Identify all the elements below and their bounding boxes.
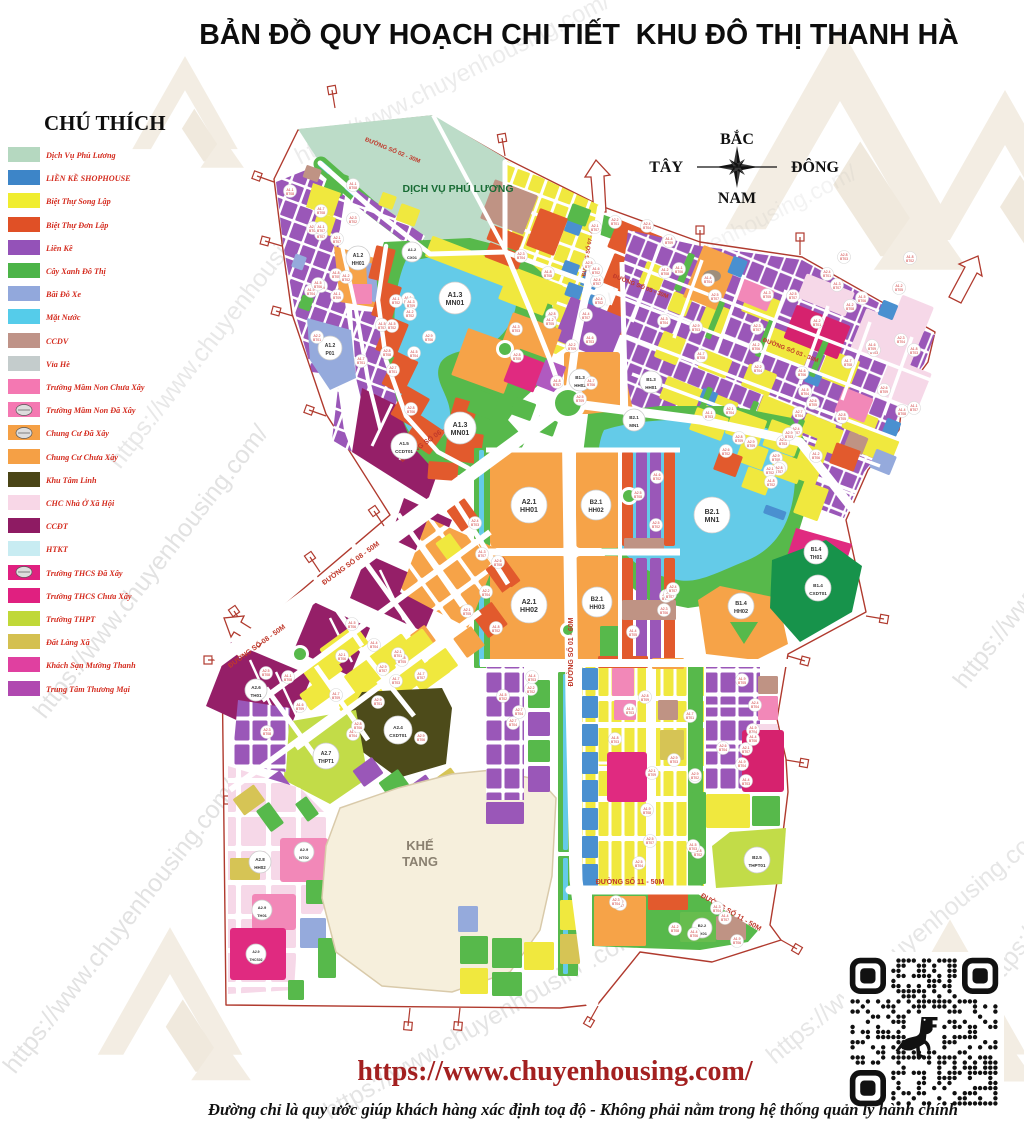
svg-text:BT06: BT06	[660, 611, 668, 615]
svg-text:Biệt Thự Song Lập: Biệt Thự Song Lập	[45, 197, 111, 206]
svg-text:BT08: BT08	[844, 363, 852, 367]
svg-text:BT05: BT05	[809, 403, 817, 407]
svg-text:A1.3: A1.3	[453, 422, 468, 429]
svg-text:BT04: BT04	[751, 705, 759, 709]
svg-text:MN1: MN1	[629, 423, 639, 428]
svg-text:Vỉa Hè: Vỉa Hè	[46, 360, 70, 369]
svg-text:BT06: BT06	[733, 941, 741, 945]
svg-text:BT09: BT09	[333, 296, 341, 300]
svg-text:BT02: BT02	[906, 259, 914, 263]
svg-text:BT03: BT03	[779, 442, 787, 446]
svg-text:HH02: HH02	[520, 607, 538, 614]
svg-text:Mặt Nước: Mặt Nước	[45, 313, 81, 322]
svg-text:A2.1: A2.1	[522, 499, 537, 506]
svg-text:A2.6: A2.6	[251, 685, 261, 690]
svg-text:BT06: BT06	[812, 456, 820, 460]
svg-text:BT06: BT06	[749, 739, 757, 743]
svg-text:MN1: MN1	[705, 517, 720, 524]
svg-text:BT06: BT06	[314, 285, 322, 289]
svg-text:BT08: BT08	[661, 272, 669, 276]
svg-text:BT06: BT06	[798, 373, 806, 377]
svg-text:BT05: BT05	[838, 417, 846, 421]
svg-text:HH01: HH01	[520, 507, 538, 514]
svg-text:TH01: TH01	[250, 693, 262, 698]
svg-text:BT02: BT02	[595, 301, 603, 305]
svg-text:BT09: BT09	[576, 399, 584, 403]
svg-text:TH01: TH01	[810, 555, 822, 561]
svg-text:BT09: BT09	[868, 347, 876, 351]
svg-text:BT07: BT07	[833, 286, 841, 290]
svg-text:BT03: BT03	[512, 329, 520, 333]
svg-text:BT05: BT05	[513, 357, 521, 361]
svg-text:BT02: BT02	[492, 629, 500, 633]
svg-text:Trường Mầm Non Đã Xây: Trường Mầm Non Đã Xây	[46, 406, 136, 415]
svg-text:BT04: BT04	[307, 292, 315, 296]
svg-text:BT03: BT03	[785, 435, 793, 439]
svg-text:BT05: BT05	[463, 612, 471, 616]
svg-text:BT02: BT02	[499, 697, 507, 701]
svg-text:BT02: BT02	[592, 271, 600, 275]
svg-text:A1.2: A1.2	[325, 343, 336, 349]
svg-text:BT09: BT09	[296, 707, 304, 711]
svg-text:BT03: BT03	[471, 523, 479, 527]
svg-text:BT09: BT09	[641, 698, 649, 702]
svg-text:B1.3: B1.3	[646, 377, 656, 382]
svg-text:BT08: BT08	[697, 356, 705, 360]
svg-text:BT06: BT06	[858, 299, 866, 303]
svg-text:BT06: BT06	[587, 383, 595, 387]
svg-text:BT04: BT04	[713, 909, 721, 913]
svg-text:A2.1: A2.1	[522, 599, 537, 606]
svg-text:BT03: BT03	[692, 328, 700, 332]
svg-text:MN01: MN01	[446, 300, 465, 307]
svg-text:BT02: BT02	[653, 477, 661, 481]
svg-text:BẮC: BẮC	[720, 129, 754, 148]
svg-text:BT04: BT04	[719, 748, 727, 752]
svg-text:BT04: BT04	[410, 354, 418, 358]
svg-text:BT03: BT03	[392, 681, 400, 685]
svg-text:Bãi Đỗ Xe: Bãi Đỗ Xe	[45, 290, 81, 299]
svg-text:BT04: BT04	[482, 593, 490, 597]
svg-text:A1.3: A1.3	[448, 292, 463, 299]
svg-text:BT03: BT03	[586, 340, 594, 344]
svg-text:BT04: BT04	[660, 321, 668, 325]
svg-text:CXDT01: CXDT01	[809, 591, 827, 596]
svg-text:B2.2: B2.2	[698, 923, 707, 928]
svg-text:CCDT01: CCDT01	[395, 449, 413, 454]
svg-text:BT02: BT02	[652, 525, 660, 529]
svg-text:B2.5: B2.5	[752, 855, 762, 860]
svg-text:KHẾ: KHẾ	[406, 838, 434, 853]
svg-text:A1.5: A1.5	[399, 441, 409, 446]
svg-text:THCS02: THCS02	[249, 958, 262, 962]
svg-text:P01: P01	[326, 351, 335, 357]
svg-text:CHC Nhà Ở Xã Hội: CHC Nhà Ở Xã Hội	[46, 498, 115, 508]
svg-text:B1.4: B1.4	[735, 601, 748, 607]
svg-text:CX01: CX01	[407, 255, 418, 260]
svg-text:BT09: BT09	[880, 390, 888, 394]
svg-text:BT01: BT01	[813, 323, 821, 327]
svg-text:BT08: BT08	[284, 678, 292, 682]
svg-text:BT02: BT02	[694, 853, 702, 857]
svg-text:BT04: BT04	[704, 280, 712, 284]
svg-text:BT05: BT05	[738, 681, 746, 685]
svg-text:BT07: BT07	[910, 408, 918, 412]
svg-text:BT07: BT07	[553, 383, 561, 387]
svg-text:TANG: TANG	[402, 854, 438, 869]
svg-text:https://www.chuyenhousing.com/: https://www.chuyenhousing.com/	[948, 390, 1024, 694]
svg-text:HTKT: HTKT	[45, 545, 69, 554]
svg-text:BT08: BT08	[544, 274, 552, 278]
svg-text:BT04: BT04	[612, 902, 620, 906]
svg-text:NT02: NT02	[299, 855, 310, 860]
svg-text:BT01: BT01	[313, 338, 321, 342]
svg-text:Dịch Vụ Phú Lương: Dịch Vụ Phú Lương	[45, 151, 116, 160]
svg-text:BT07: BT07	[378, 326, 386, 330]
svg-text:BT08: BT08	[846, 307, 854, 311]
svg-text:BT07: BT07	[593, 282, 601, 286]
svg-text:BT07: BT07	[591, 228, 599, 232]
svg-text:BT05: BT05	[895, 288, 903, 292]
svg-text:BT04: BT04	[726, 411, 734, 415]
svg-text:BT08: BT08	[898, 412, 906, 416]
svg-text:A2.4: A2.4	[393, 725, 403, 730]
svg-text:B2.1: B2.1	[590, 500, 603, 506]
svg-text:BT08: BT08	[494, 563, 502, 567]
svg-text:B2.1: B2.1	[705, 509, 720, 516]
svg-text:BT06: BT06	[752, 347, 760, 351]
svg-text:CXDT01: CXDT01	[389, 733, 407, 738]
svg-text:BT07: BT07	[317, 235, 325, 239]
svg-text:BT07: BT07	[669, 589, 677, 593]
svg-text:Biệt Thự Đơn Lập: Biệt Thự Đơn Lập	[45, 221, 108, 230]
svg-text:BT04: BT04	[754, 369, 762, 373]
svg-text:BT07: BT07	[742, 750, 750, 754]
svg-text:BT04: BT04	[643, 226, 651, 230]
svg-text:BT09: BT09	[747, 444, 755, 448]
svg-text:BT04: BT04	[370, 645, 378, 649]
svg-text:BT03: BT03	[626, 711, 634, 715]
svg-text:Liền Kề: Liền Kề	[45, 244, 73, 253]
svg-text:BT07: BT07	[721, 918, 729, 922]
svg-text:BT02: BT02	[388, 326, 396, 330]
svg-text:BT08: BT08	[634, 495, 642, 499]
svg-text:B2.1: B2.1	[629, 415, 639, 420]
svg-text:Trường THPT: Trường THPT	[46, 615, 96, 624]
svg-text:BT06: BT06	[425, 338, 433, 342]
svg-text:BT02: BT02	[766, 471, 774, 475]
svg-text:BT08: BT08	[286, 192, 294, 196]
svg-text:Khu Tâm Linh: Khu Tâm Linh	[45, 476, 97, 485]
svg-text:HH02: HH02	[734, 609, 748, 615]
svg-text:BT08: BT08	[317, 211, 325, 215]
svg-text:THPT1: THPT1	[318, 759, 334, 765]
svg-text:A2.9: A2.9	[252, 950, 259, 954]
svg-text:TÂY: TÂY	[649, 157, 683, 176]
svg-text:BT04: BT04	[795, 414, 803, 418]
svg-text:BT09: BT09	[665, 241, 673, 245]
svg-text:A2.8: A2.8	[255, 857, 265, 862]
svg-text:Chung Cư Chưa Xây: Chung Cư Chưa Xây	[46, 453, 118, 462]
svg-text:DỊCH VỤ PHÚ LƯƠNG: DỊCH VỤ PHÚ LƯƠNG	[402, 182, 513, 195]
svg-text:BT02: BT02	[342, 278, 350, 282]
svg-text:Trường Mầm Non Chưa Xây: Trường Mầm Non Chưa Xây	[46, 383, 145, 392]
svg-text:BT01: BT01	[357, 361, 365, 365]
svg-text:BT07: BT07	[753, 328, 761, 332]
svg-text:BT06: BT06	[354, 726, 362, 730]
svg-text:B1.4: B1.4	[813, 583, 823, 588]
svg-text:BT09: BT09	[568, 347, 576, 351]
svg-text:Trường THCS Đã Xây: Trường THCS Đã Xây	[46, 569, 123, 578]
svg-text:ĐÔNG: ĐÔNG	[791, 157, 840, 176]
svg-text:BT08: BT08	[263, 732, 271, 736]
svg-text:BT07: BT07	[582, 316, 590, 320]
svg-text:BT07: BT07	[317, 229, 325, 233]
svg-text:BT08: BT08	[349, 186, 357, 190]
svg-text:BT02: BT02	[767, 483, 775, 487]
svg-text:BT06: BT06	[348, 625, 356, 629]
svg-text:BT01: BT01	[611, 222, 619, 226]
svg-text:HH01: HH01	[352, 261, 365, 267]
svg-text:A1.2: A1.2	[408, 247, 417, 252]
svg-text:THPT01: THPT01	[748, 863, 766, 868]
svg-text:LIỀN KỀ SHOPHOUSE: LIỀN KỀ SHOPHOUSE	[45, 173, 131, 183]
svg-text:HH02: HH02	[254, 865, 266, 870]
svg-text:NAM: NAM	[718, 190, 756, 207]
svg-text:HH02: HH02	[588, 508, 604, 514]
svg-text:BT04: BT04	[897, 340, 905, 344]
svg-text:BT06: BT06	[338, 657, 346, 661]
svg-text:BT04: BT04	[635, 864, 643, 868]
svg-text:BT01: BT01	[823, 274, 831, 278]
svg-text:BT01: BT01	[394, 654, 402, 658]
svg-text:BT06: BT06	[407, 410, 415, 414]
svg-text:Chung Cư Đã Xây: Chung Cư Đã Xây	[46, 429, 109, 438]
svg-text:BT04: BT04	[738, 764, 746, 768]
svg-text:BT03: BT03	[910, 351, 918, 355]
svg-text:A2.7: A2.7	[321, 751, 332, 757]
svg-text:BT06: BT06	[675, 270, 683, 274]
svg-text:Cây Xanh Đô Thị: Cây Xanh Đô Thị	[46, 267, 107, 276]
svg-text:B1.3: B1.3	[575, 375, 585, 380]
svg-text:BT03: BT03	[670, 760, 678, 764]
svg-text:BT08: BT08	[671, 929, 679, 933]
svg-text:BT03: BT03	[705, 415, 713, 419]
svg-text:BT06: BT06	[690, 934, 698, 938]
svg-text:BT01: BT01	[686, 716, 694, 720]
svg-text:BT04: BT04	[801, 392, 809, 396]
svg-text:BT07: BT07	[646, 841, 654, 845]
svg-text:BT06: BT06	[417, 738, 425, 742]
svg-text:BT02: BT02	[392, 301, 400, 305]
svg-text:BT08: BT08	[262, 673, 270, 677]
svg-text:BT03: BT03	[742, 782, 750, 786]
svg-text:HH03: HH03	[589, 605, 605, 611]
svg-text:Đất Làng Xã: Đất Làng Xã	[45, 638, 90, 647]
svg-text:BT05: BT05	[546, 322, 554, 326]
svg-text:BT04: BT04	[517, 256, 525, 260]
svg-text:Khách Sạn Mường Thanh: Khách Sạn Mường Thanh	[45, 661, 136, 670]
svg-text:A2.9: A2.9	[300, 847, 309, 852]
svg-text:BT07: BT07	[379, 669, 387, 673]
svg-text:BT01: BT01	[389, 370, 397, 374]
svg-text:BT09: BT09	[735, 439, 743, 443]
svg-text:BT09: BT09	[332, 696, 340, 700]
svg-text:BT05: BT05	[629, 633, 637, 637]
svg-text:TH01: TH01	[257, 913, 268, 918]
svg-text:BT03: BT03	[611, 740, 619, 744]
svg-text:BT02: BT02	[722, 452, 730, 456]
svg-text:Trường THCS Chưa Xây: Trường THCS Chưa Xây	[46, 592, 132, 601]
svg-text:BT05: BT05	[332, 275, 340, 279]
svg-text:CCĐT: CCĐT	[46, 522, 69, 531]
svg-text:BT04: BT04	[349, 734, 357, 738]
svg-text:BT03: BT03	[528, 678, 536, 682]
svg-text:B1.4: B1.4	[811, 547, 822, 553]
svg-text:BT03: BT03	[840, 257, 848, 261]
svg-text:HH01: HH01	[645, 385, 657, 390]
svg-text:BT09: BT09	[648, 773, 656, 777]
svg-text:BT04: BT04	[515, 712, 523, 716]
svg-text:BT04: BT04	[509, 723, 517, 727]
svg-text:A1.2: A1.2	[353, 253, 364, 259]
svg-text:BT07: BT07	[478, 554, 486, 558]
svg-text:BT07: BT07	[417, 676, 425, 680]
svg-text:A2.9: A2.9	[258, 905, 267, 910]
svg-text:BT02: BT02	[527, 690, 535, 694]
svg-text:BT02: BT02	[406, 314, 414, 318]
svg-text:BT08: BT08	[643, 811, 651, 815]
svg-text:BT02: BT02	[691, 776, 699, 780]
svg-text:BT03: BT03	[689, 847, 697, 851]
svg-text:B2.1: B2.1	[591, 597, 604, 603]
svg-text:BT02: BT02	[349, 220, 357, 224]
svg-text:BT07: BT07	[711, 297, 719, 301]
svg-text:Trung Tâm Thương Mại: Trung Tâm Thương Mại	[46, 685, 131, 694]
svg-text:BT07: BT07	[333, 240, 341, 244]
svg-text:MN01: MN01	[451, 430, 470, 437]
svg-text:CCDV: CCDV	[46, 337, 70, 346]
svg-text:BT08: BT08	[383, 353, 391, 357]
svg-text:BT01: BT01	[374, 702, 382, 706]
svg-text:BT05: BT05	[763, 295, 771, 299]
svg-text:BT07: BT07	[789, 296, 797, 300]
